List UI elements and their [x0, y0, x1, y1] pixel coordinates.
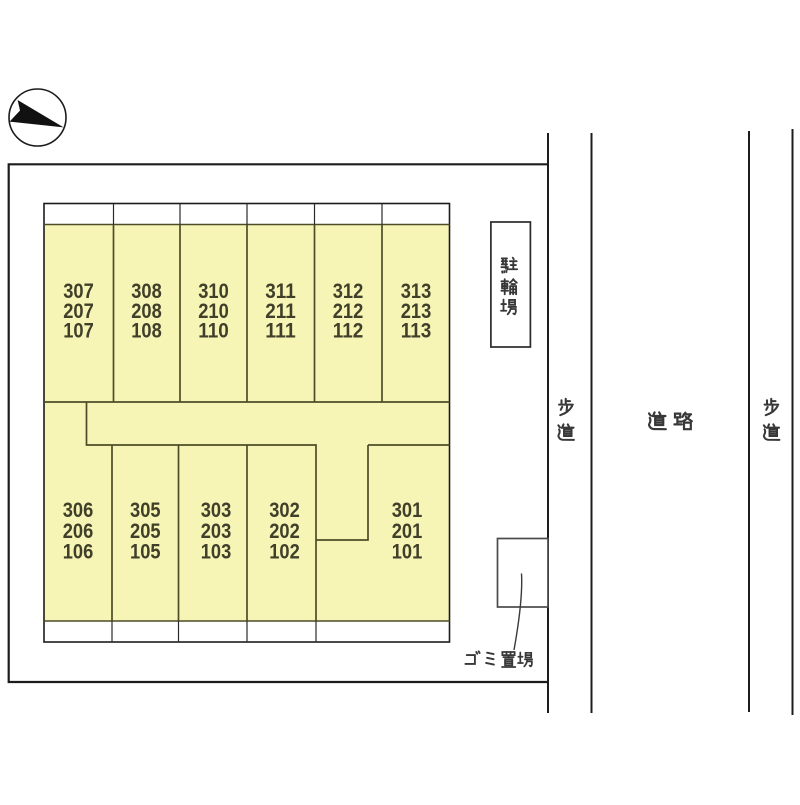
svg-text:106: 106	[63, 541, 94, 564]
svg-text:112: 112	[333, 320, 364, 343]
svg-text:302: 302	[269, 499, 300, 522]
svg-text:202: 202	[269, 520, 300, 543]
svg-text:206: 206	[63, 520, 94, 543]
svg-text:305: 305	[130, 499, 161, 522]
svg-text:107: 107	[63, 320, 94, 343]
svg-text:103: 103	[201, 541, 232, 564]
svg-text:201: 201	[392, 520, 423, 543]
svg-text:105: 105	[130, 541, 161, 564]
svg-text:301: 301	[392, 499, 423, 522]
svg-text:205: 205	[130, 520, 161, 543]
svg-text:111: 111	[265, 320, 296, 343]
svg-text:108: 108	[131, 320, 162, 343]
svg-text:101: 101	[392, 541, 423, 564]
svg-text:110: 110	[198, 320, 229, 343]
svg-text:113: 113	[401, 320, 432, 343]
svg-text:303: 303	[201, 499, 232, 522]
svg-text:306: 306	[63, 499, 94, 522]
svg-text:203: 203	[201, 520, 232, 543]
svg-text:102: 102	[269, 541, 300, 564]
